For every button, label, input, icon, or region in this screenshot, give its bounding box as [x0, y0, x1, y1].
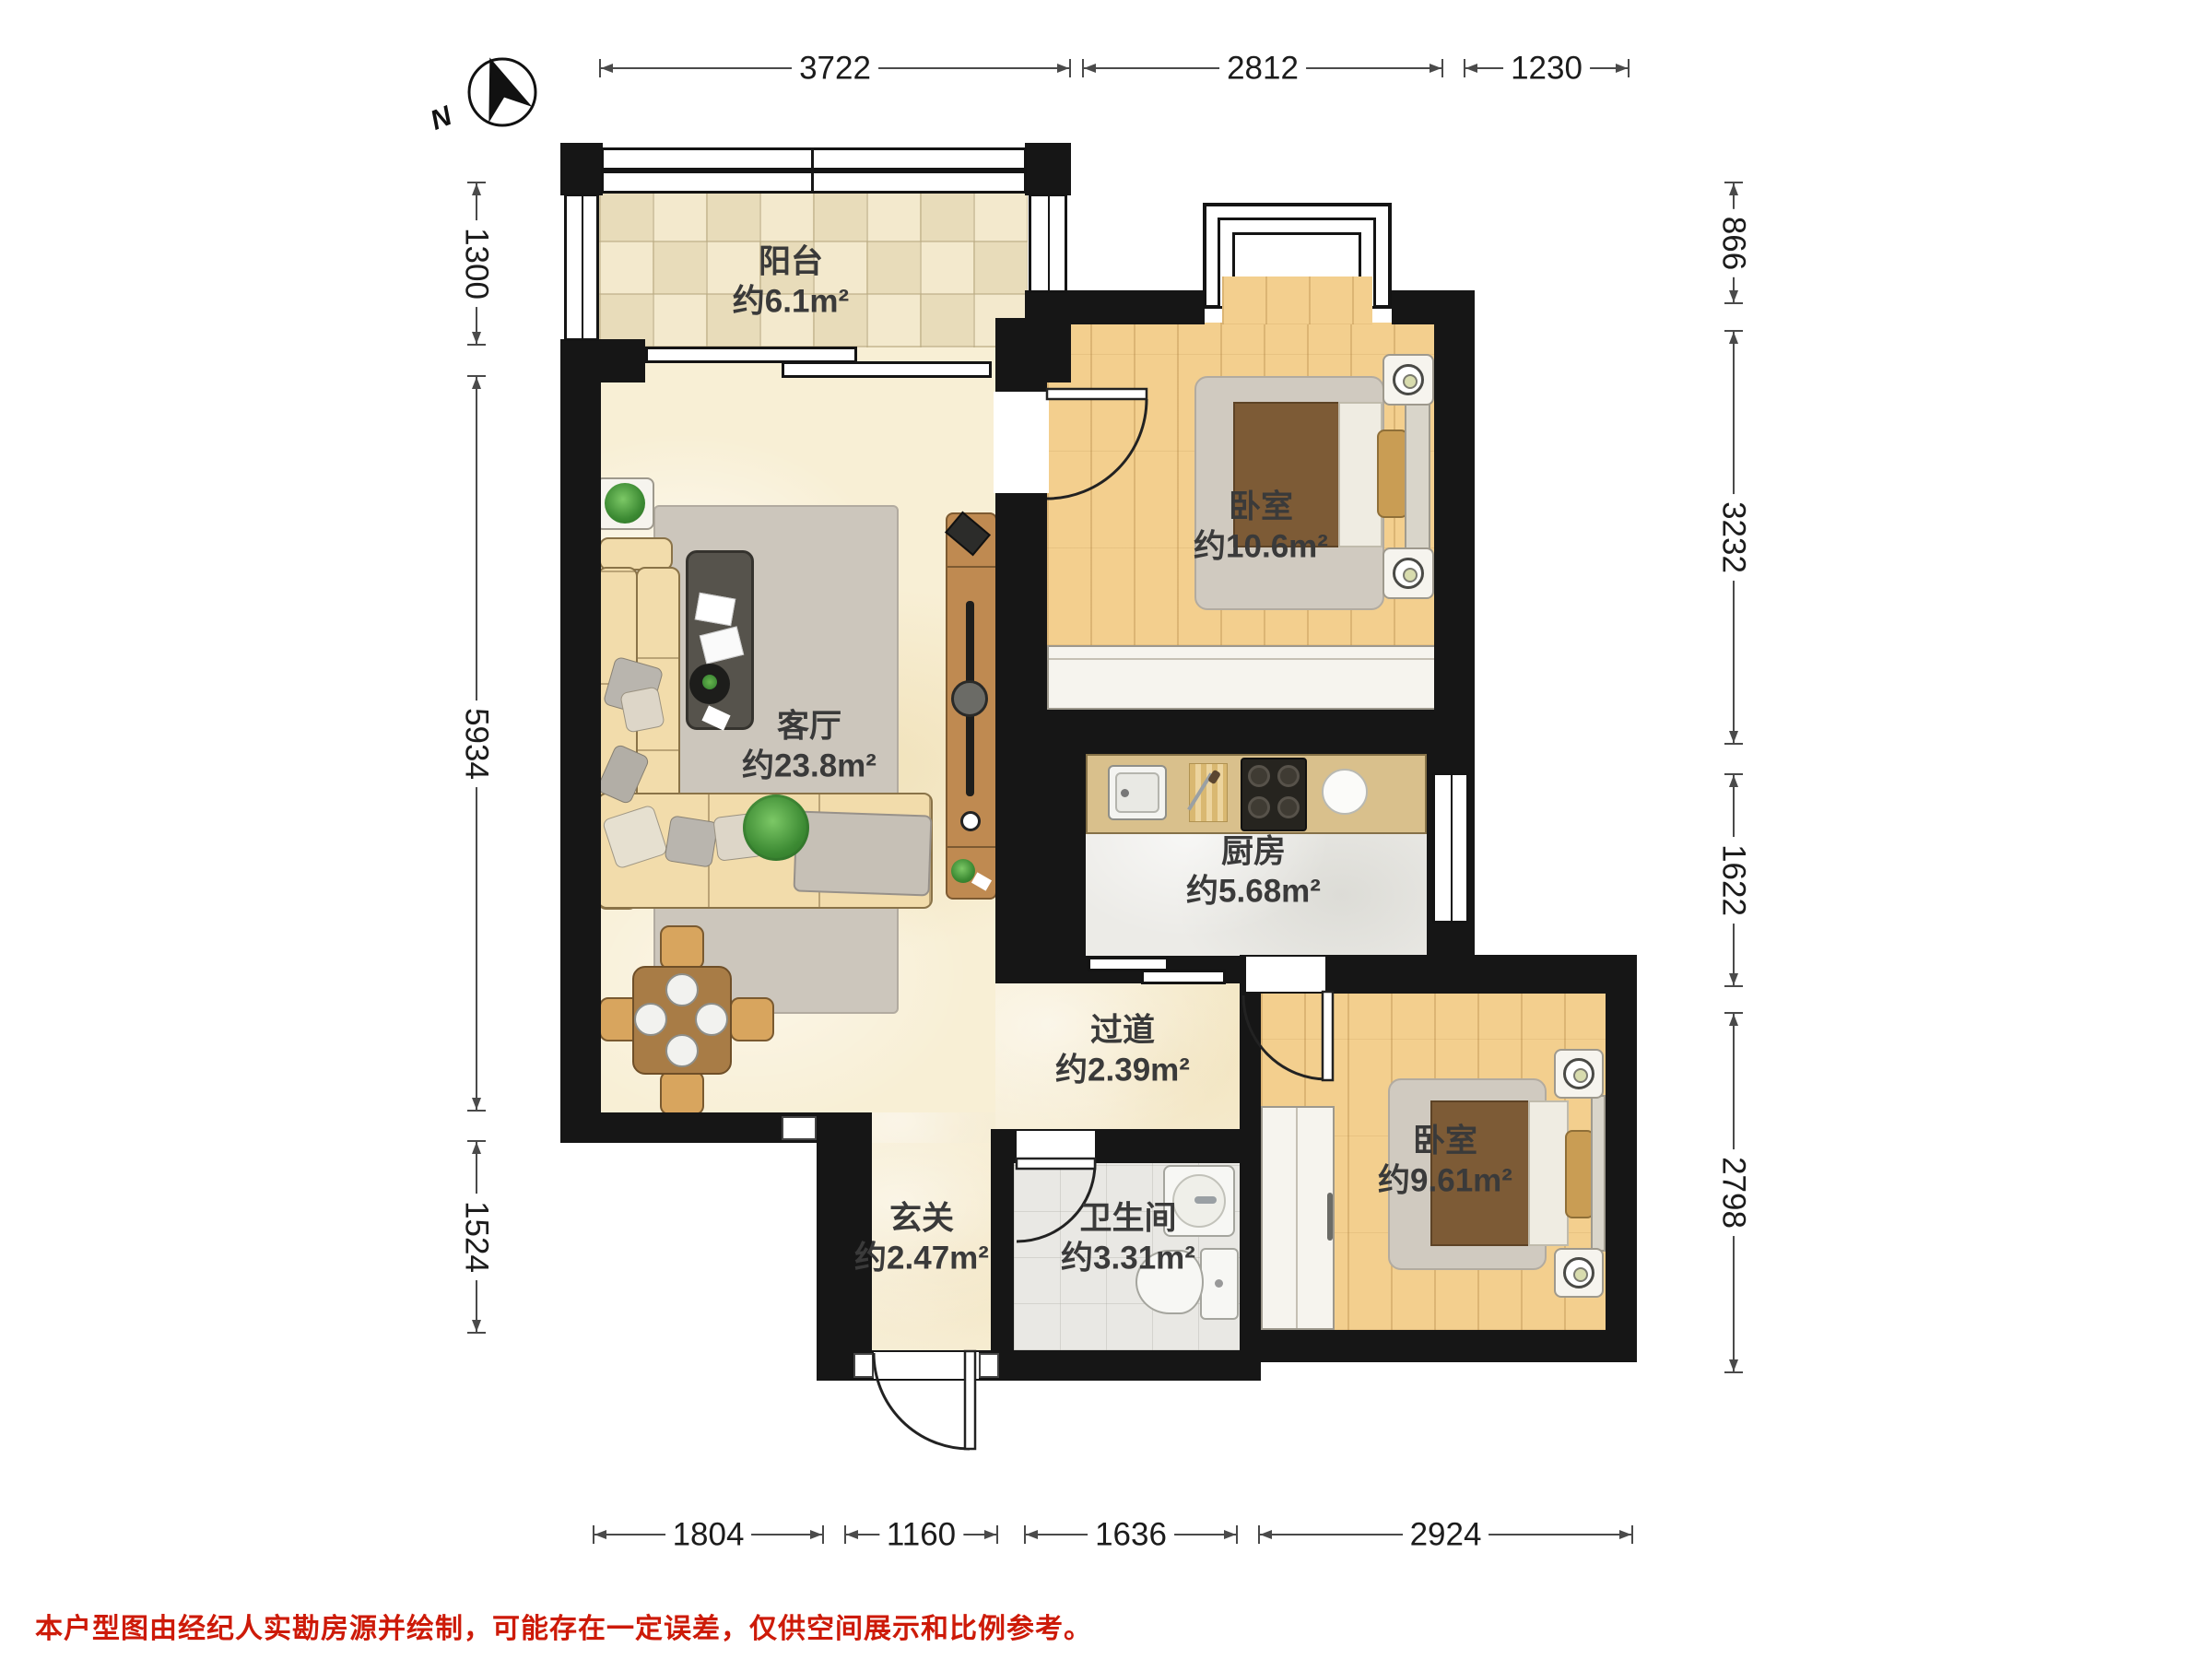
room-label-bedroom-bottom: 卧室 约9.61m² — [1378, 1122, 1512, 1200]
room-label-kitchen: 厨房 约5.68m² — [1186, 832, 1321, 911]
room-label-bedroom-top: 卧室 约10.6m² — [1194, 488, 1328, 566]
door-leaf-icon — [1017, 1159, 1095, 1169]
room-name: 卫生间 — [1079, 1200, 1176, 1236]
room-label-bathroom: 卫生间 约3.31m² — [1061, 1199, 1195, 1277]
door-leaf-icon — [965, 1351, 975, 1449]
dim-bottom-3: 1636 — [1026, 1534, 1236, 1535]
room-label-balcony: 阳台 约6.1m² — [733, 242, 849, 321]
disclaimer-text: 本户型图由经纪人实勘房源并绘制，可能存在一定误差，仅供空间展示和比例参考。 — [35, 1606, 1092, 1646]
room-area: 约6.1m² — [733, 283, 849, 319]
room-area: 约10.6m² — [1194, 528, 1328, 564]
room-area: 约5.68m² — [1186, 873, 1321, 909]
room-name: 阳台 — [759, 243, 823, 279]
dim-right-2: 3232 — [1733, 332, 1735, 743]
door-leaf-icon — [1047, 389, 1147, 399]
dim-left-1: 1300 — [476, 183, 477, 344]
floor-plan: N 3722 2812 1230 1300 5934 1524 866 3232… — [0, 0, 2212, 1659]
door-arc-icon — [1047, 399, 1147, 499]
room-area: 约3.31m² — [1061, 1240, 1195, 1276]
dim-bottom-4: 2924 — [1260, 1534, 1631, 1535]
room-name: 过道 — [1090, 1012, 1155, 1048]
room-label-entry: 玄关 约2.47m² — [854, 1199, 989, 1277]
dim-top-1: 3722 — [601, 67, 1069, 69]
room-area: 约9.61m² — [1378, 1162, 1512, 1198]
dim-top-3: 1230 — [1465, 67, 1628, 69]
dim-bottom-1: 1804 — [594, 1534, 822, 1535]
dim-right-3: 1622 — [1733, 775, 1735, 985]
dim-top-2: 2812 — [1084, 67, 1441, 69]
room-area: 约2.47m² — [854, 1240, 989, 1276]
dim-bottom-2: 1160 — [846, 1534, 996, 1535]
room-name: 玄关 — [889, 1200, 954, 1236]
room-name: 卧室 — [1413, 1123, 1477, 1159]
door-arc-icon — [1243, 995, 1327, 1079]
room-name: 厨房 — [1221, 833, 1286, 869]
room-name: 卧室 — [1229, 488, 1293, 524]
room-area: 约23.8m² — [742, 747, 877, 783]
dim-left-3: 1524 — [476, 1142, 477, 1332]
room-name: 客厅 — [777, 708, 841, 744]
door-arc-icon — [874, 1353, 970, 1449]
room-label-living-room: 客厅 约23.8m² — [742, 707, 877, 785]
dim-left-2: 5934 — [476, 377, 477, 1110]
room-label-hallway: 过道 约2.39m² — [1055, 1011, 1190, 1089]
room-area: 约2.39m² — [1055, 1052, 1190, 1088]
dim-right-1: 866 — [1733, 183, 1735, 302]
door-and-compass-layer — [0, 0, 2212, 1659]
dim-right-4: 2798 — [1733, 1014, 1735, 1371]
door-leaf-icon — [1323, 992, 1333, 1080]
